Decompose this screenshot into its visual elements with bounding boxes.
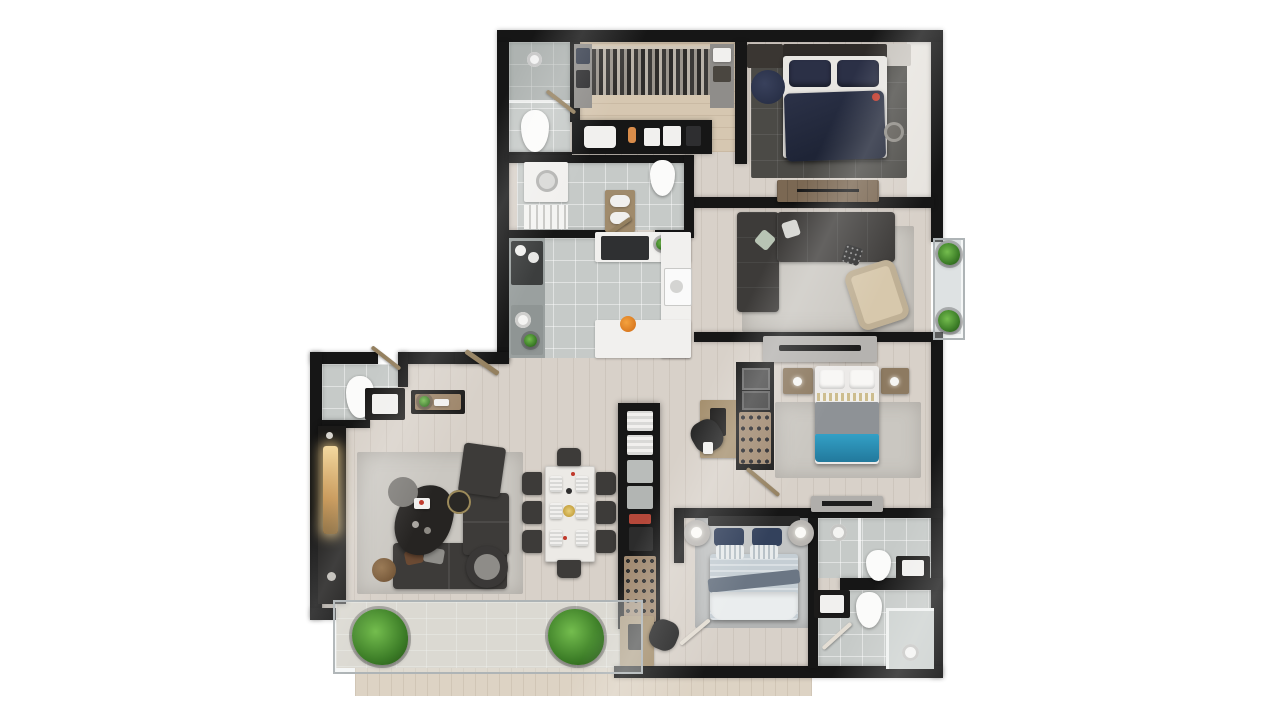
wall-bath2-right (684, 155, 694, 238)
entry-plant (419, 396, 430, 407)
sink-basin (515, 312, 531, 328)
bedroom3-pillow-striped-1 (716, 545, 744, 559)
placemat-5 (550, 530, 562, 546)
bedroom2-throw-teal (815, 434, 879, 462)
shower-glass-bath3 (858, 518, 861, 578)
bedroom2-shoe-shelf (739, 412, 771, 464)
bedroom2-tv (822, 501, 872, 506)
fireplace-glow (323, 446, 338, 534)
bedroom2-frame-2 (742, 391, 770, 410)
side-balcony-plant-bottom (938, 310, 960, 332)
bedroom3-headboard (708, 516, 800, 526)
towel-stack-2 (663, 126, 681, 146)
bedroom3-pillow-navy-1 (714, 528, 744, 546)
bedroom2-lamp-right (890, 377, 899, 386)
terrace-plant-right (548, 609, 604, 665)
dining-red-1 (571, 472, 575, 476)
master-duvet (784, 90, 886, 161)
kitchen-herb-1 (524, 334, 537, 347)
master-red-accent (872, 93, 880, 101)
bedroom2-frame-1 (742, 368, 770, 390)
closet-folded-items (713, 48, 731, 62)
living-armchair (458, 442, 507, 497)
closet-basket (713, 66, 731, 82)
wall-left-upper (497, 42, 509, 360)
plate-1 (515, 245, 526, 256)
living-swivel-cushion (474, 554, 500, 580)
closet-sink (584, 126, 616, 148)
family-tv (779, 345, 861, 351)
vanity-basket-1 (686, 126, 701, 146)
oven-knob (670, 280, 683, 293)
magazine-red-dot (419, 500, 424, 505)
side-table-round (447, 490, 471, 514)
bedroom3-pillow-striped-2 (750, 545, 778, 559)
sectional-sofa-vertical (737, 212, 779, 312)
bedroom3-lamp-left (691, 527, 702, 538)
dining-chair-r1 (596, 472, 616, 495)
powder-sink (372, 394, 398, 414)
towel-stack-1 (644, 128, 660, 146)
plate-2 (528, 252, 539, 263)
dining-red-2 (563, 536, 567, 540)
media-shelf-item-2 (327, 572, 336, 581)
shower-slats-bath2 (524, 205, 568, 229)
wall-closet-master (735, 42, 747, 164)
floor-plan (0, 0, 1280, 720)
toiletry-bottle (628, 127, 636, 143)
side-balcony-plant-top (938, 243, 960, 265)
dining-chair-l3 (522, 530, 542, 553)
placemat-1 (550, 476, 562, 492)
master-window-band (907, 42, 931, 197)
dining-chair-l1 (522, 472, 542, 495)
closet-red-item (629, 514, 651, 524)
media-shelf-item-1 (326, 432, 333, 439)
dining-chair-bottom (557, 560, 581, 578)
towel-roll-1 (610, 195, 630, 207)
dining-chair-r3 (596, 530, 616, 553)
dining-centerpiece (563, 505, 575, 517)
closet-bag-2 (576, 70, 590, 88)
linen-towels-2 (627, 435, 653, 455)
living-pouf (372, 558, 396, 582)
coffee-cup-2 (424, 527, 431, 534)
dining-chair-l2 (522, 501, 542, 524)
master-floor-tray (884, 122, 904, 142)
wall-top (497, 30, 943, 42)
master-pouf (751, 70, 785, 104)
master-dresser-handle (797, 189, 859, 192)
entry-tray (434, 399, 449, 406)
placemat-2 (576, 476, 588, 492)
dining-item-dark (566, 488, 572, 494)
island-counter-bottom (595, 320, 691, 358)
storage-box-2 (627, 486, 653, 509)
washer-door (536, 170, 558, 192)
sink-bath3 (902, 560, 924, 576)
hanging-clothes-rail (592, 46, 710, 95)
bedroom3-lamp-right (795, 527, 806, 538)
fruit-bowl (620, 316, 636, 332)
shower-zone-bath1 (509, 42, 570, 102)
bedroom3-duvet-fold (710, 592, 798, 620)
sink-bath4 (820, 595, 844, 613)
master-console-left (747, 44, 783, 68)
closet-bag-1 (576, 48, 590, 64)
bedroom2-blanket-gray (815, 402, 879, 436)
closet-dark-box (629, 527, 653, 551)
master-pillow-right (837, 60, 879, 87)
placemat-6 (576, 530, 588, 546)
range (601, 236, 649, 260)
wall-right-upper (931, 42, 943, 242)
placemat-3 (550, 503, 562, 519)
bedroom2-accent-band (817, 393, 877, 401)
bedroom2-pillow-right (849, 370, 875, 389)
master-nightstand-right (885, 44, 911, 66)
storage-box-1 (627, 460, 653, 483)
coffee-cup-1 (412, 521, 419, 528)
bedroom3-pillow-navy-2 (752, 528, 782, 546)
shower-head-bath1 (527, 52, 542, 67)
master-pillow-left (789, 60, 831, 87)
linen-towels-1 (627, 411, 653, 431)
bedroom2-pillow-left (819, 370, 845, 389)
shower-head-bath4 (902, 644, 919, 661)
dining-chair-r2 (596, 501, 616, 524)
placemat-4 (576, 503, 588, 519)
study-paper (703, 442, 713, 454)
dining-chair-top (557, 448, 581, 466)
wall-kitchen-top-a (509, 230, 609, 238)
shower-head-bath3 (830, 524, 847, 541)
wall-bedroom3-left (674, 508, 684, 563)
bedroom2-lamp-left (793, 377, 802, 386)
terrace-plant-left (352, 609, 408, 665)
